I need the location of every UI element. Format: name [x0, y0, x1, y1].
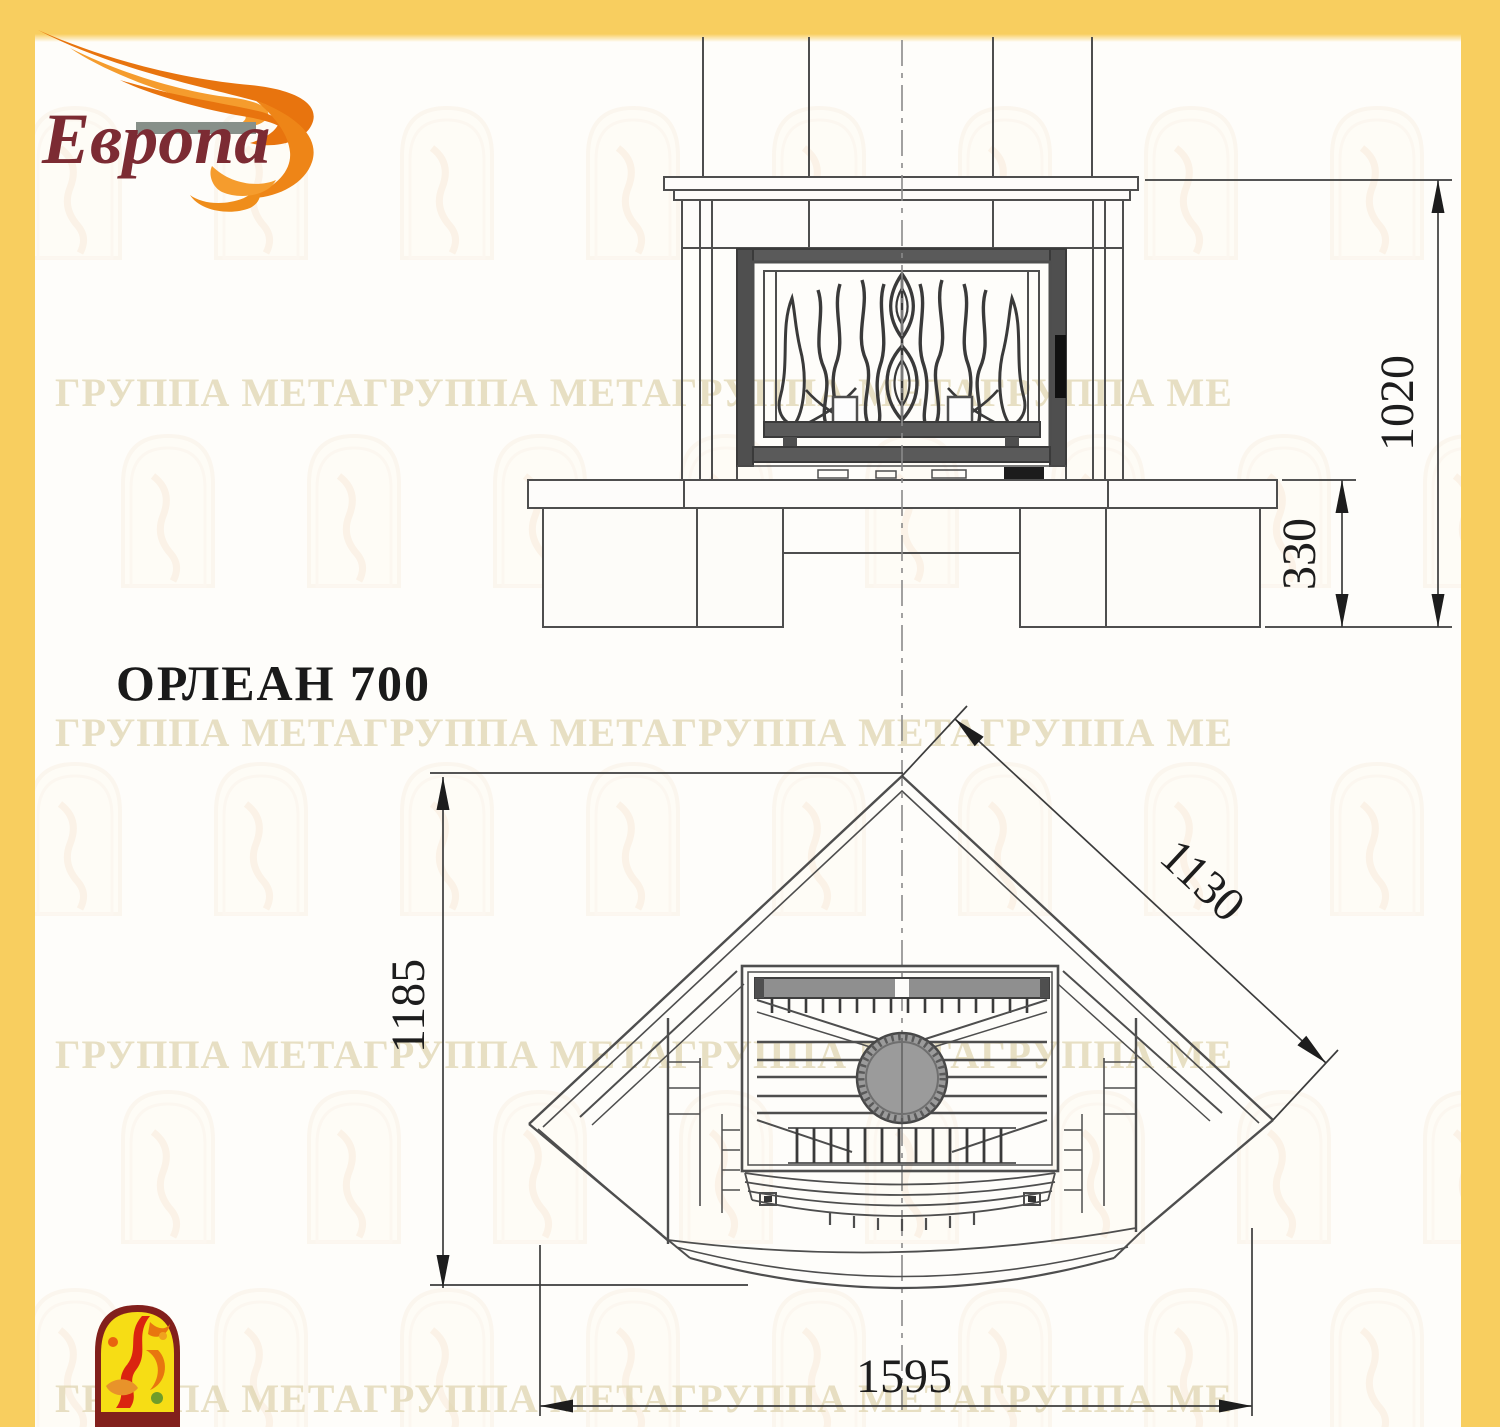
- svg-text:ГРУППА МЕТАГРУППА МЕТАГРУППА М: ГРУППА МЕТАГРУППА МЕТАГРУППА МЕТАГРУППА …: [55, 710, 1233, 755]
- svg-text:ГРУППА МЕТАГРУППА МЕТАГРУППА М: ГРУППА МЕТАГРУППА МЕТАГРУППА МЕТАГРУППА …: [55, 1032, 1233, 1077]
- svg-text:330: 330: [1273, 518, 1326, 590]
- svg-text:1185: 1185: [382, 959, 435, 1053]
- svg-text:1020: 1020: [1371, 355, 1424, 451]
- svg-text:1595: 1595: [856, 1350, 952, 1403]
- svg-text:ГРУППА МЕТАГРУППА МЕТАГРУППА М: ГРУППА МЕТАГРУППА МЕТАГРУППА МЕТАГРУППА …: [55, 1376, 1233, 1421]
- svg-text:ОРЛЕАН 700: ОРЛЕАН 700: [116, 655, 431, 711]
- svg-text:Европа: Европа: [41, 99, 270, 179]
